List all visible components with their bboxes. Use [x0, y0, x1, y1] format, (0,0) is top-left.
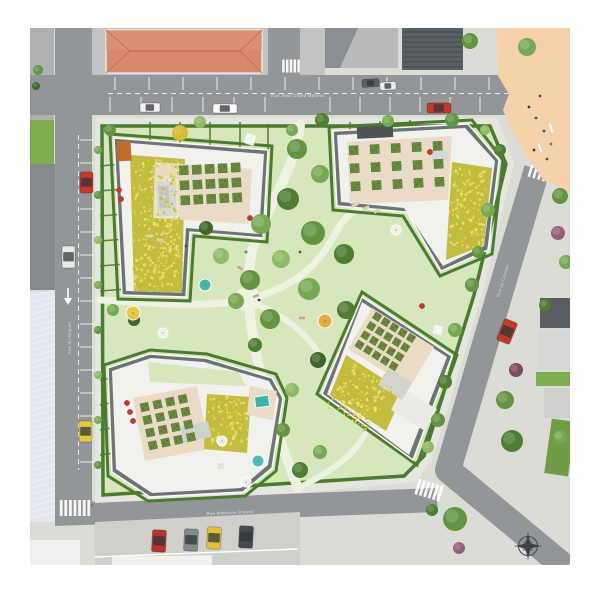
tree — [286, 124, 298, 136]
tree — [272, 250, 290, 268]
street-label-west: Rue du Muguet — [67, 321, 72, 354]
tree — [448, 323, 462, 337]
red-planting — [427, 149, 432, 154]
tree — [107, 304, 119, 316]
car — [238, 526, 253, 549]
car — [151, 530, 166, 553]
tree — [104, 124, 116, 136]
tree — [431, 413, 445, 427]
parasol — [158, 328, 168, 338]
tree — [301, 221, 325, 245]
tree — [94, 326, 102, 334]
car — [183, 529, 198, 552]
tree — [213, 248, 229, 264]
tree — [94, 281, 102, 289]
east-light-building — [538, 330, 572, 370]
tree — [494, 144, 506, 156]
parasol — [241, 477, 251, 487]
red-planting — [127, 409, 132, 414]
tree — [539, 299, 551, 311]
parasol — [126, 306, 140, 320]
bench — [147, 235, 154, 238]
east-light-building-2 — [544, 388, 572, 418]
north-dark-ridged-roof — [402, 28, 463, 70]
tree — [240, 270, 260, 290]
southwest-pale-building — [30, 540, 80, 565]
red-planting — [130, 418, 135, 423]
building-c-pool — [254, 395, 269, 408]
car — [362, 79, 379, 88]
tree — [422, 441, 434, 453]
tree — [552, 188, 568, 204]
tree — [94, 461, 102, 469]
tree — [472, 246, 484, 258]
tree — [172, 125, 188, 141]
east-lawn — [536, 372, 572, 386]
person — [535, 117, 538, 120]
tree — [509, 363, 523, 377]
tree — [94, 371, 102, 379]
tree — [334, 244, 354, 264]
tree — [462, 33, 478, 49]
car — [380, 82, 396, 91]
car — [62, 246, 75, 268]
tree — [496, 391, 514, 409]
tree — [480, 125, 490, 135]
car — [206, 527, 221, 550]
tree — [94, 191, 102, 199]
person — [533, 149, 536, 152]
tree — [501, 430, 523, 452]
person — [539, 95, 542, 98]
car — [427, 103, 451, 113]
tree — [426, 504, 438, 516]
tree — [194, 116, 206, 128]
west-lawn — [30, 120, 54, 164]
tree — [94, 236, 102, 244]
person — [543, 130, 546, 133]
building-b-roof-box — [357, 125, 394, 139]
tree — [518, 38, 536, 56]
red-planting — [116, 187, 121, 192]
tree — [315, 113, 329, 127]
bench — [218, 463, 224, 469]
tree — [310, 352, 326, 368]
canopy — [432, 324, 444, 336]
site-plan-page: Rue Jean Girard Marieux Rue du Muguet Ru… — [0, 0, 600, 600]
car — [80, 172, 93, 193]
car — [140, 103, 160, 112]
car — [213, 104, 237, 113]
person — [546, 158, 549, 161]
tree — [465, 278, 479, 292]
tree — [287, 139, 307, 159]
tree — [481, 203, 495, 217]
tree — [438, 375, 452, 389]
tree — [199, 221, 213, 235]
tree — [277, 188, 299, 210]
tree — [298, 278, 320, 300]
tree — [33, 65, 43, 75]
person — [550, 143, 553, 146]
parasol — [199, 279, 211, 291]
building-a-orange-corner — [116, 141, 131, 162]
red-planting — [247, 215, 252, 220]
tree — [445, 113, 459, 127]
tree — [443, 507, 467, 531]
tree — [551, 226, 565, 240]
tree — [292, 462, 308, 478]
person — [528, 106, 531, 109]
tree — [94, 146, 102, 154]
tree — [94, 416, 102, 424]
tree — [382, 115, 394, 127]
tree — [553, 430, 567, 444]
tree — [228, 293, 244, 309]
person — [91, 504, 94, 507]
red-planting — [124, 400, 129, 405]
parasol — [217, 436, 227, 446]
tree — [311, 165, 329, 183]
parasol — [318, 314, 332, 328]
tree — [260, 309, 280, 329]
tree — [32, 82, 40, 90]
car — [79, 421, 92, 442]
person — [185, 245, 188, 248]
west-dark-building — [30, 164, 57, 290]
tree — [276, 423, 290, 437]
parasol — [252, 455, 264, 467]
tree — [285, 383, 299, 397]
red-planting — [118, 196, 123, 201]
tree — [453, 542, 465, 554]
red-planting — [419, 303, 424, 308]
person — [258, 299, 261, 302]
tree — [251, 214, 271, 234]
bench — [299, 317, 305, 320]
person — [299, 251, 302, 254]
tree — [337, 301, 355, 319]
tree — [313, 445, 327, 459]
person — [245, 251, 248, 254]
site-plan-drawing: Rue Jean Girard Marieux Rue du Muguet Ru… — [0, 0, 600, 600]
tree — [248, 338, 262, 352]
street-label-north: Rue Jean Girard Marieux — [271, 93, 325, 98]
parasol — [391, 225, 401, 235]
red-roof-building — [106, 30, 262, 73]
